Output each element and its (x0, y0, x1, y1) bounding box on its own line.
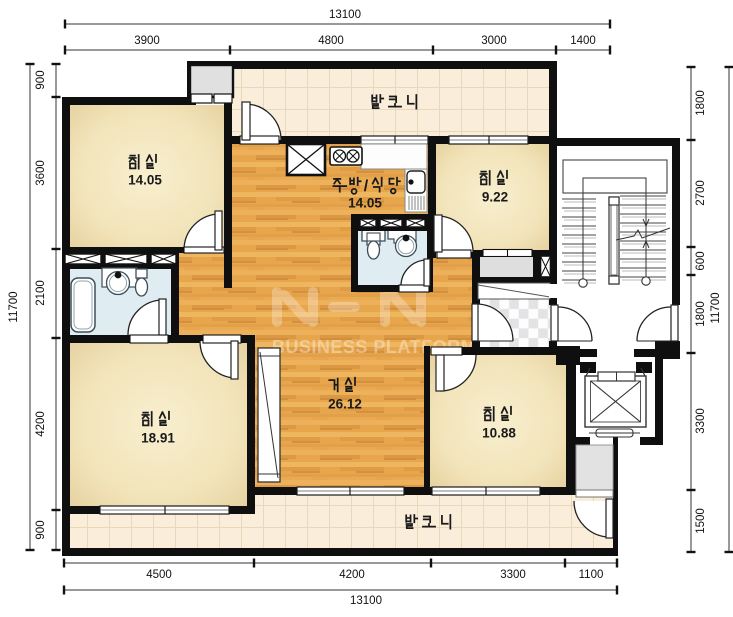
svg-text:1500: 1500 (695, 508, 707, 534)
svg-text:14.05: 14.05 (128, 173, 162, 188)
svg-text:3000: 3000 (481, 35, 507, 47)
svg-text:1800: 1800 (695, 90, 707, 116)
svg-text:11700: 11700 (8, 291, 20, 322)
svg-text:1800: 1800 (695, 301, 707, 327)
svg-text:1100: 1100 (579, 569, 604, 581)
svg-text:11700: 11700 (710, 292, 722, 323)
svg-text:3600: 3600 (35, 160, 47, 186)
svg-text:2100: 2100 (35, 280, 47, 306)
svg-text:900: 900 (35, 520, 47, 539)
svg-text:13100: 13100 (350, 595, 382, 607)
svg-text:4200: 4200 (339, 569, 365, 581)
svg-text:13100: 13100 (329, 9, 361, 21)
svg-text:4200: 4200 (35, 411, 47, 437)
svg-text:9.22: 9.22 (482, 190, 508, 205)
svg-text:/: / (364, 178, 369, 195)
svg-text:2700: 2700 (695, 180, 707, 206)
svg-text:18.91: 18.91 (141, 431, 175, 446)
svg-text:3300: 3300 (500, 569, 526, 581)
svg-text:26.12: 26.12 (328, 397, 362, 412)
svg-text:3300: 3300 (695, 408, 707, 434)
svg-text:3900: 3900 (134, 35, 160, 47)
svg-text:900: 900 (35, 70, 47, 89)
svg-text:14.05: 14.05 (348, 196, 382, 211)
svg-text:600: 600 (695, 251, 707, 270)
svg-text:4800: 4800 (318, 35, 344, 47)
svg-text:10.88: 10.88 (482, 426, 516, 441)
svg-text:1400: 1400 (570, 35, 596, 47)
svg-text:4500: 4500 (146, 569, 172, 581)
